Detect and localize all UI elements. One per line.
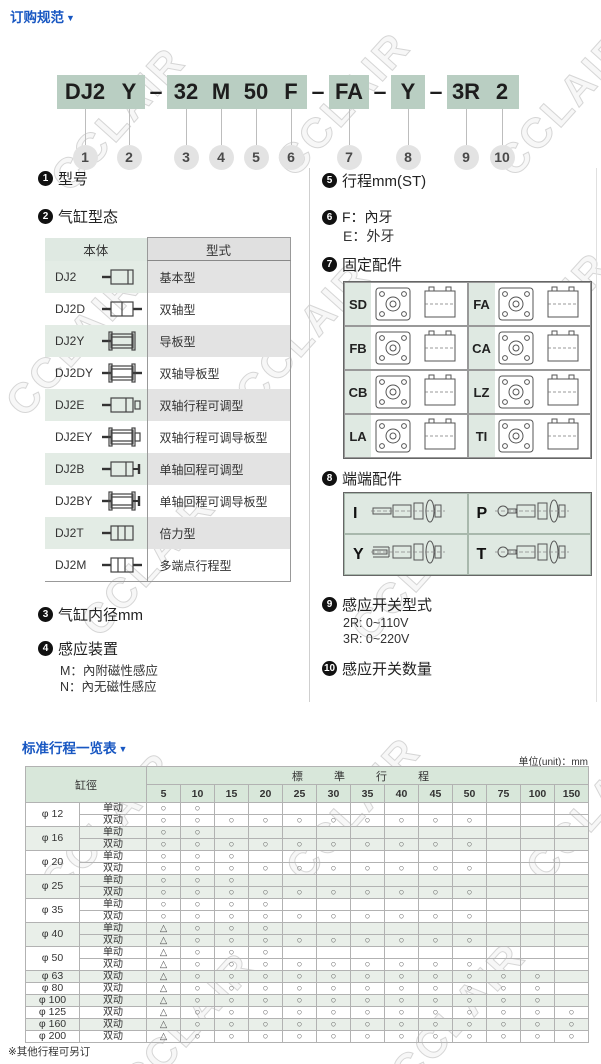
stroke-mark-cell: ○ bbox=[351, 887, 385, 899]
legend-badge-6: 6 bbox=[322, 210, 337, 225]
code-separator-dash: – bbox=[369, 75, 391, 109]
stroke-mark-cell: ○ bbox=[215, 875, 249, 887]
stroke-col-header: 5 bbox=[147, 785, 181, 803]
action-cell: 双动 bbox=[80, 887, 147, 899]
stroke-mark-cell bbox=[521, 923, 555, 935]
mount-code-fb: FB bbox=[345, 327, 371, 369]
stroke-mark-cell: ○ bbox=[147, 815, 181, 827]
stroke-mark-cell: ○ bbox=[453, 839, 487, 851]
model-code-segment: 505 bbox=[237, 75, 275, 170]
action-cell: 单动 bbox=[80, 851, 147, 863]
stroke-row: φ 35单动○○○○ bbox=[26, 899, 589, 911]
cylinder-model-label: DJ2B bbox=[45, 453, 97, 485]
action-cell: 双动 bbox=[80, 815, 147, 827]
legend-label-bore: 气缸内径mm bbox=[58, 604, 143, 625]
stroke-row: φ 125双动△○○○○○○○○○○○○ bbox=[26, 1007, 589, 1019]
model-code-diagram: DJ21Y2–323M4505F6–FA7–Y8–3R9210 bbox=[57, 75, 519, 170]
stroke-mark-cell: ○ bbox=[351, 983, 385, 995]
code-position-number-7: 7 bbox=[337, 145, 362, 170]
stroke-mark-cell: ○ bbox=[215, 959, 249, 971]
code-connector-line bbox=[221, 109, 222, 145]
stroke-mark-cell: ○ bbox=[453, 1007, 487, 1019]
mount-code-cb: CB bbox=[345, 371, 371, 413]
stroke-mark-cell bbox=[521, 947, 555, 959]
stroke-mark-cell: ○ bbox=[385, 995, 419, 1007]
stroke-mark-cell: ○ bbox=[215, 839, 249, 851]
model-code-segment: 323 bbox=[167, 75, 205, 170]
stroke-header-row-1: 缸徑標 準 行 程 bbox=[26, 767, 589, 785]
stroke-mark-cell: ○ bbox=[181, 971, 215, 983]
stroke-mark-cell bbox=[453, 803, 487, 815]
stroke-mark-cell bbox=[249, 827, 283, 839]
stroke-mark-cell: ○ bbox=[283, 1019, 317, 1031]
stroke-mark-cell bbox=[317, 899, 351, 911]
stroke-mark-cell: ○ bbox=[351, 863, 385, 875]
stroke-mark-cell: ○ bbox=[317, 959, 351, 971]
cylinder-model-label: DJ2D bbox=[45, 293, 97, 325]
bore-cell: φ 200 bbox=[26, 1031, 80, 1043]
cylinder-model-label: DJ2E bbox=[45, 389, 97, 421]
code-connector-line bbox=[466, 109, 467, 145]
sensor-option-n: N：內无磁性感应 bbox=[60, 676, 157, 695]
cylinder-tandem-icon bbox=[97, 517, 147, 549]
stroke-mark-cell bbox=[555, 815, 589, 827]
cylinder-type-label: 基本型 bbox=[147, 261, 290, 294]
stroke-mark-cell: ○ bbox=[317, 887, 351, 899]
action-cell: 双动 bbox=[80, 959, 147, 971]
stroke-mark-cell: ○ bbox=[249, 1031, 283, 1043]
stroke-mark-cell: ○ bbox=[181, 827, 215, 839]
stroke-mark-cell bbox=[555, 923, 589, 935]
stroke-mark-cell bbox=[249, 851, 283, 863]
cylinder-type-row: DJ2EY双轴行程可调导板型 bbox=[45, 421, 290, 453]
code-box-10: 2 bbox=[485, 75, 519, 109]
code-position-number-1: 1 bbox=[73, 145, 98, 170]
stroke-mark-cell: ○ bbox=[181, 851, 215, 863]
stroke-mark-cell bbox=[453, 875, 487, 887]
rod-end-cell-t: T bbox=[468, 534, 592, 575]
stroke-mark-cell: ○ bbox=[419, 887, 453, 899]
code-box-5: 50 bbox=[237, 75, 275, 109]
mount-drawing-cb-icon bbox=[371, 371, 467, 413]
stroke-mark-cell: ○ bbox=[317, 1007, 351, 1019]
cylinder-dual-rod-icon bbox=[97, 293, 147, 325]
stroke-mark-cell bbox=[283, 803, 317, 815]
stroke-mark-cell: ○ bbox=[249, 1019, 283, 1031]
stroke-mark-cell: ○ bbox=[215, 1019, 249, 1031]
stroke-mark-cell: ○ bbox=[453, 995, 487, 1007]
stroke-mark-cell bbox=[521, 851, 555, 863]
stroke-mark-cell bbox=[419, 803, 453, 815]
stroke-mark-cell bbox=[385, 947, 419, 959]
stroke-mark-cell: ○ bbox=[249, 971, 283, 983]
stroke-row: 双动△○○○○○○○○○ bbox=[26, 935, 589, 947]
rod-end-drawing-y-icon bbox=[369, 537, 447, 572]
stroke-mark-cell bbox=[385, 803, 419, 815]
thread-option-e: E：外牙 bbox=[343, 226, 394, 246]
stroke-mark-cell bbox=[487, 911, 521, 923]
stroke-col-header: 50 bbox=[453, 785, 487, 803]
stroke-mark-cell bbox=[521, 827, 555, 839]
mount-cell-la: LA bbox=[344, 414, 468, 458]
bore-cell: φ 160 bbox=[26, 1019, 80, 1031]
stroke-mark-cell bbox=[521, 875, 555, 887]
stroke-mark-cell bbox=[317, 803, 351, 815]
cylinder-type-table: 本体 型式 DJ2基本型DJ2D双轴型DJ2Y导板型DJ2DY双轴导板型DJ2E… bbox=[45, 237, 291, 582]
stroke-mark-cell bbox=[283, 851, 317, 863]
legend-badge-9: 9 bbox=[322, 597, 337, 612]
cylinder-type-label: 多端点行程型 bbox=[147, 549, 290, 582]
stroke-mark-cell bbox=[555, 947, 589, 959]
stroke-mark-cell bbox=[283, 947, 317, 959]
stroke-mark-cell: ○ bbox=[385, 1031, 419, 1043]
stroke-mark-cell: ○ bbox=[419, 863, 453, 875]
model-code-segment: 3R9 bbox=[447, 75, 485, 170]
stroke-mark-cell bbox=[555, 863, 589, 875]
cylinder-dual-guided-icon bbox=[97, 357, 147, 389]
stroke-mark-cell: ○ bbox=[453, 815, 487, 827]
code-connector-line bbox=[408, 109, 409, 145]
rod-end-code-i: I bbox=[353, 505, 369, 523]
code-connector-line bbox=[186, 109, 187, 145]
action-cell: 单动 bbox=[80, 899, 147, 911]
code-connector-line bbox=[349, 109, 350, 145]
stroke-mark-cell: ○ bbox=[283, 983, 317, 995]
ordering-spec-page: CCLAIRCCLAIRCCLAIRCCLAIRCCLAIRCCLAIRCCLA… bbox=[0, 0, 601, 1064]
cylinder-adjustable-icon bbox=[97, 389, 147, 421]
stroke-mark-cell: ○ bbox=[215, 863, 249, 875]
stroke-mark-cell bbox=[419, 875, 453, 887]
stroke-mark-cell: ○ bbox=[147, 875, 181, 887]
action-cell: 双动 bbox=[80, 971, 147, 983]
cyl-table-header-type: 型式 bbox=[147, 238, 290, 261]
code-box-4: M bbox=[205, 75, 237, 109]
stroke-mark-cell: ○ bbox=[419, 1031, 453, 1043]
bore-cell: φ 20 bbox=[26, 851, 80, 875]
stroke-mark-cell: ○ bbox=[521, 983, 555, 995]
section-title-stroke-list[interactable]: 标准行程一览表▼ bbox=[22, 737, 127, 757]
stroke-mark-cell: ○ bbox=[215, 947, 249, 959]
stroke-mark-cell bbox=[487, 875, 521, 887]
stroke-mark-cell: ○ bbox=[181, 947, 215, 959]
mount-drawing-ti-icon bbox=[495, 415, 591, 457]
code-position-number-3: 3 bbox=[174, 145, 199, 170]
bore-cell: φ 25 bbox=[26, 875, 80, 899]
stroke-mark-cell: ○ bbox=[147, 863, 181, 875]
rod-end-code-p: P bbox=[477, 505, 493, 523]
stroke-mark-cell: ○ bbox=[385, 1019, 419, 1031]
stroke-mark-cell: ○ bbox=[317, 935, 351, 947]
stroke-row: 双动△○○○○○○○○○ bbox=[26, 959, 589, 971]
stroke-mark-cell: ○ bbox=[249, 899, 283, 911]
cylinder-type-row: DJ2E双轴行程可调型 bbox=[45, 389, 290, 421]
cylinder-model-label: DJ2EY bbox=[45, 421, 97, 453]
stroke-mark-cell bbox=[521, 839, 555, 851]
stroke-mark-cell: ○ bbox=[317, 983, 351, 995]
stroke-mark-cell: ○ bbox=[351, 935, 385, 947]
stroke-mark-cell: ○ bbox=[215, 935, 249, 947]
code-box-6: F bbox=[275, 75, 307, 109]
stroke-mark-cell: ○ bbox=[385, 935, 419, 947]
action-cell: 双动 bbox=[80, 1007, 147, 1019]
legend-item-9: 9 感应开关型式 bbox=[322, 594, 432, 615]
stroke-mark-cell: ○ bbox=[453, 983, 487, 995]
stroke-mark-cell bbox=[385, 899, 419, 911]
stroke-row: φ 80双动△○○○○○○○○○○○ bbox=[26, 983, 589, 995]
stroke-mark-cell: ○ bbox=[317, 971, 351, 983]
stroke-mark-cell: ○ bbox=[181, 1019, 215, 1031]
stroke-mark-cell bbox=[283, 827, 317, 839]
cylinder-type-row: DJ2M多端点行程型 bbox=[45, 549, 290, 582]
stroke-mark-cell: ○ bbox=[453, 1019, 487, 1031]
stroke-mark-cell bbox=[487, 851, 521, 863]
model-code-segment: Y8 bbox=[391, 75, 425, 170]
stroke-mark-cell: ○ bbox=[181, 887, 215, 899]
section-title-stroke-text: 标准行程一览表 bbox=[22, 741, 117, 756]
stroke-mark-cell bbox=[351, 827, 385, 839]
stroke-mark-cell: ○ bbox=[249, 887, 283, 899]
cylinder-type-label: 导板型 bbox=[147, 325, 290, 357]
stroke-mark-cell bbox=[521, 803, 555, 815]
stroke-row: φ 40单动△○○○ bbox=[26, 923, 589, 935]
stroke-mark-cell bbox=[521, 863, 555, 875]
stroke-mark-cell: △ bbox=[147, 1007, 181, 1019]
stroke-mark-cell: ○ bbox=[181, 815, 215, 827]
stroke-mark-cell: △ bbox=[147, 983, 181, 995]
stroke-row: 双动○○○○○○○○○○ bbox=[26, 815, 589, 827]
stroke-mark-cell bbox=[521, 911, 555, 923]
cylinder-type-row: DJ2Y导板型 bbox=[45, 325, 290, 357]
stroke-col-header: 15 bbox=[215, 785, 249, 803]
stroke-mark-cell: ○ bbox=[181, 875, 215, 887]
legend-badge-3: 3 bbox=[38, 607, 53, 622]
stroke-mark-cell: ○ bbox=[385, 959, 419, 971]
action-cell: 单动 bbox=[80, 803, 147, 815]
standard-stroke-table: 缸徑標 準 行 程510152025303540455075100150 φ 1… bbox=[25, 766, 589, 1043]
stroke-mark-cell bbox=[555, 959, 589, 971]
model-code-segment: Y2 bbox=[113, 75, 145, 170]
stroke-mark-cell bbox=[283, 899, 317, 911]
stroke-mark-cell: ○ bbox=[555, 1019, 589, 1031]
stroke-mark-cell bbox=[521, 935, 555, 947]
mount-drawing-fb-icon bbox=[371, 327, 467, 369]
legend-label-switch-qty: 感应开关数量 bbox=[342, 658, 432, 679]
stroke-mark-cell: ○ bbox=[487, 1031, 521, 1043]
stroke-mark-cell bbox=[555, 887, 589, 899]
code-position-number-4: 4 bbox=[209, 145, 234, 170]
bore-header: 缸徑 bbox=[26, 767, 147, 803]
stroke-mark-cell: ○ bbox=[181, 959, 215, 971]
stroke-mark-cell: ○ bbox=[181, 923, 215, 935]
stroke-mark-cell: ○ bbox=[283, 911, 317, 923]
stroke-mark-cell bbox=[555, 803, 589, 815]
stroke-mark-cell: ○ bbox=[147, 887, 181, 899]
stroke-row: φ 200双动△○○○○○○○○○○○○ bbox=[26, 1031, 589, 1043]
stroke-mark-cell: ○ bbox=[283, 887, 317, 899]
stroke-mark-cell: ○ bbox=[317, 995, 351, 1007]
stroke-mark-cell: ○ bbox=[215, 995, 249, 1007]
stroke-mark-cell bbox=[487, 863, 521, 875]
cylinder-type-row: DJ2D双轴型 bbox=[45, 293, 290, 325]
stroke-col-header: 10 bbox=[181, 785, 215, 803]
stroke-col-header: 100 bbox=[521, 785, 555, 803]
legend-label-mounting: 固定配件 bbox=[342, 254, 402, 275]
code-position-number-5: 5 bbox=[244, 145, 269, 170]
stroke-mark-cell: ○ bbox=[419, 911, 453, 923]
stroke-mark-cell: ○ bbox=[351, 911, 385, 923]
cylinder-type-label: 双轴行程可调型 bbox=[147, 389, 290, 421]
legend-badge-7: 7 bbox=[322, 257, 337, 272]
code-box-1: DJ2 bbox=[57, 75, 113, 109]
stroke-mark-cell: ○ bbox=[283, 995, 317, 1007]
stroke-mark-cell bbox=[419, 923, 453, 935]
mount-code-ti: TI bbox=[469, 415, 495, 457]
stroke-row: φ 160双动△○○○○○○○○○○○○ bbox=[26, 1019, 589, 1031]
legend-item-7: 7 固定配件 bbox=[322, 254, 402, 275]
stroke-mark-cell: ○ bbox=[419, 815, 453, 827]
switch-option-3r: 3R: 0~220V bbox=[343, 632, 409, 646]
legend-label-model: 型号 bbox=[58, 168, 88, 189]
stroke-mark-cell: ○ bbox=[385, 911, 419, 923]
stroke-mark-cell: △ bbox=[147, 995, 181, 1007]
action-cell: 单动 bbox=[80, 827, 147, 839]
stroke-mark-cell: ○ bbox=[317, 839, 351, 851]
stroke-mark-cell bbox=[555, 935, 589, 947]
code-separator-dash: – bbox=[425, 75, 447, 109]
stroke-mark-cell: ○ bbox=[215, 983, 249, 995]
cylinder-basic-icon bbox=[97, 261, 147, 294]
legend-item-10: 10 感应开关数量 bbox=[322, 658, 432, 679]
mount-cell-fa: FA bbox=[468, 282, 592, 326]
cylinder-guided-icon bbox=[97, 325, 147, 357]
mount-cell-cb: CB bbox=[344, 370, 468, 414]
stroke-mark-cell: ○ bbox=[521, 1031, 555, 1043]
stroke-mark-cell bbox=[385, 923, 419, 935]
legend-label-rod-end: 端端配件 bbox=[342, 468, 402, 489]
stroke-row: φ 100双动△○○○○○○○○○○○ bbox=[26, 995, 589, 1007]
stroke-mark-cell: ○ bbox=[385, 983, 419, 995]
stroke-mark-cell: ○ bbox=[419, 971, 453, 983]
stroke-row: φ 50单动△○○○ bbox=[26, 947, 589, 959]
bore-cell: φ 12 bbox=[26, 803, 80, 827]
stroke-mark-cell: ○ bbox=[555, 1031, 589, 1043]
stroke-mark-cell: ○ bbox=[351, 1019, 385, 1031]
rod-end-code-t: T bbox=[477, 546, 493, 564]
stroke-mark-cell: ○ bbox=[453, 911, 487, 923]
stroke-mark-cell: ○ bbox=[147, 839, 181, 851]
stroke-mark-cell: ○ bbox=[215, 971, 249, 983]
stroke-mark-cell bbox=[385, 827, 419, 839]
stroke-mark-cell: ○ bbox=[385, 815, 419, 827]
stroke-mark-cell: ○ bbox=[249, 923, 283, 935]
action-cell: 双动 bbox=[80, 863, 147, 875]
action-cell: 双动 bbox=[80, 911, 147, 923]
cylinder-type-row: DJ2BY单轴回程可调导板型 bbox=[45, 485, 290, 517]
cylinder-type-row: DJ2B单轴回程可调型 bbox=[45, 453, 290, 485]
cylinder-type-row: DJ2基本型 bbox=[45, 261, 290, 294]
stroke-mark-cell bbox=[487, 827, 521, 839]
cylinder-model-label: DJ2Y bbox=[45, 325, 97, 357]
code-separator-dash: – bbox=[145, 75, 167, 109]
stroke-mark-cell: ○ bbox=[181, 995, 215, 1007]
stroke-mark-cell bbox=[453, 923, 487, 935]
stroke-section-collapse-icon: ▼ bbox=[119, 744, 128, 754]
stroke-col-header: 40 bbox=[385, 785, 419, 803]
bore-cell: φ 63 bbox=[26, 971, 80, 983]
stroke-mark-cell: ○ bbox=[215, 899, 249, 911]
stroke-mark-cell: ○ bbox=[487, 995, 521, 1007]
stroke-mark-cell bbox=[283, 923, 317, 935]
stroke-mark-cell: ○ bbox=[283, 815, 317, 827]
stroke-mark-cell: ○ bbox=[181, 983, 215, 995]
stroke-mark-cell: ○ bbox=[351, 971, 385, 983]
stroke-mark-cell: ○ bbox=[249, 1007, 283, 1019]
action-cell: 单动 bbox=[80, 923, 147, 935]
model-code-segment: 210 bbox=[485, 75, 519, 170]
code-connector-line bbox=[129, 109, 130, 145]
stroke-mark-cell bbox=[351, 803, 385, 815]
legend-item-1: 1 型号 bbox=[38, 168, 88, 189]
action-cell: 双动 bbox=[80, 995, 147, 1007]
stroke-mark-cell bbox=[351, 947, 385, 959]
legend-badge-1: 1 bbox=[38, 171, 53, 186]
stroke-mark-cell bbox=[283, 875, 317, 887]
bore-cell: φ 50 bbox=[26, 947, 80, 971]
stroke-mark-cell: ○ bbox=[351, 839, 385, 851]
stroke-mark-cell bbox=[555, 839, 589, 851]
stroke-mark-cell: ○ bbox=[487, 1007, 521, 1019]
stroke-mark-cell: ○ bbox=[147, 911, 181, 923]
stroke-mark-cell: ○ bbox=[385, 839, 419, 851]
stroke-mark-cell bbox=[487, 935, 521, 947]
section-collapse-icon: ▼ bbox=[66, 13, 75, 23]
stroke-mark-cell: ○ bbox=[453, 1031, 487, 1043]
rod-end-drawing-p-icon bbox=[493, 496, 571, 531]
rod-end-drawing-i-icon bbox=[369, 496, 447, 531]
cylinder-type-row: DJ2DY双轴导板型 bbox=[45, 357, 290, 389]
stroke-mark-cell: ○ bbox=[351, 1007, 385, 1019]
stroke-row: φ 25单动○○○ bbox=[26, 875, 589, 887]
stroke-mark-cell: ○ bbox=[487, 983, 521, 995]
stroke-mark-cell: ○ bbox=[385, 1007, 419, 1019]
bore-cell: φ 125 bbox=[26, 1007, 80, 1019]
code-position-number-2: 2 bbox=[117, 145, 142, 170]
stroke-mark-cell: ○ bbox=[419, 935, 453, 947]
stroke-mark-cell bbox=[317, 947, 351, 959]
mount-cell-sd: SD bbox=[344, 282, 468, 326]
stroke-col-header: 75 bbox=[487, 785, 521, 803]
stroke-mark-cell: △ bbox=[147, 947, 181, 959]
mount-code-sd: SD bbox=[345, 283, 371, 325]
stroke-mark-cell: △ bbox=[147, 923, 181, 935]
legend-item-2: 2 气缸型态 bbox=[38, 206, 118, 227]
stroke-mark-cell: ○ bbox=[215, 1007, 249, 1019]
legend-column-divider bbox=[309, 168, 310, 702]
stroke-mark-cell: ○ bbox=[249, 863, 283, 875]
cylinder-type-label: 单轴回程可调导板型 bbox=[147, 485, 290, 517]
stroke-mark-cell bbox=[487, 923, 521, 935]
code-connector-line bbox=[85, 109, 86, 145]
stroke-mark-cell bbox=[521, 815, 555, 827]
stroke-col-header: 30 bbox=[317, 785, 351, 803]
code-connector-line bbox=[291, 109, 292, 145]
section-title-ordering[interactable]: 订购规范▼ bbox=[10, 6, 75, 26]
cylinder-type-label: 双轴行程可调导板型 bbox=[147, 421, 290, 453]
stroke-mark-cell bbox=[487, 887, 521, 899]
stroke-mark-cell bbox=[385, 851, 419, 863]
stroke-row: φ 16单动○○ bbox=[26, 827, 589, 839]
stroke-mark-cell: ○ bbox=[283, 1007, 317, 1019]
